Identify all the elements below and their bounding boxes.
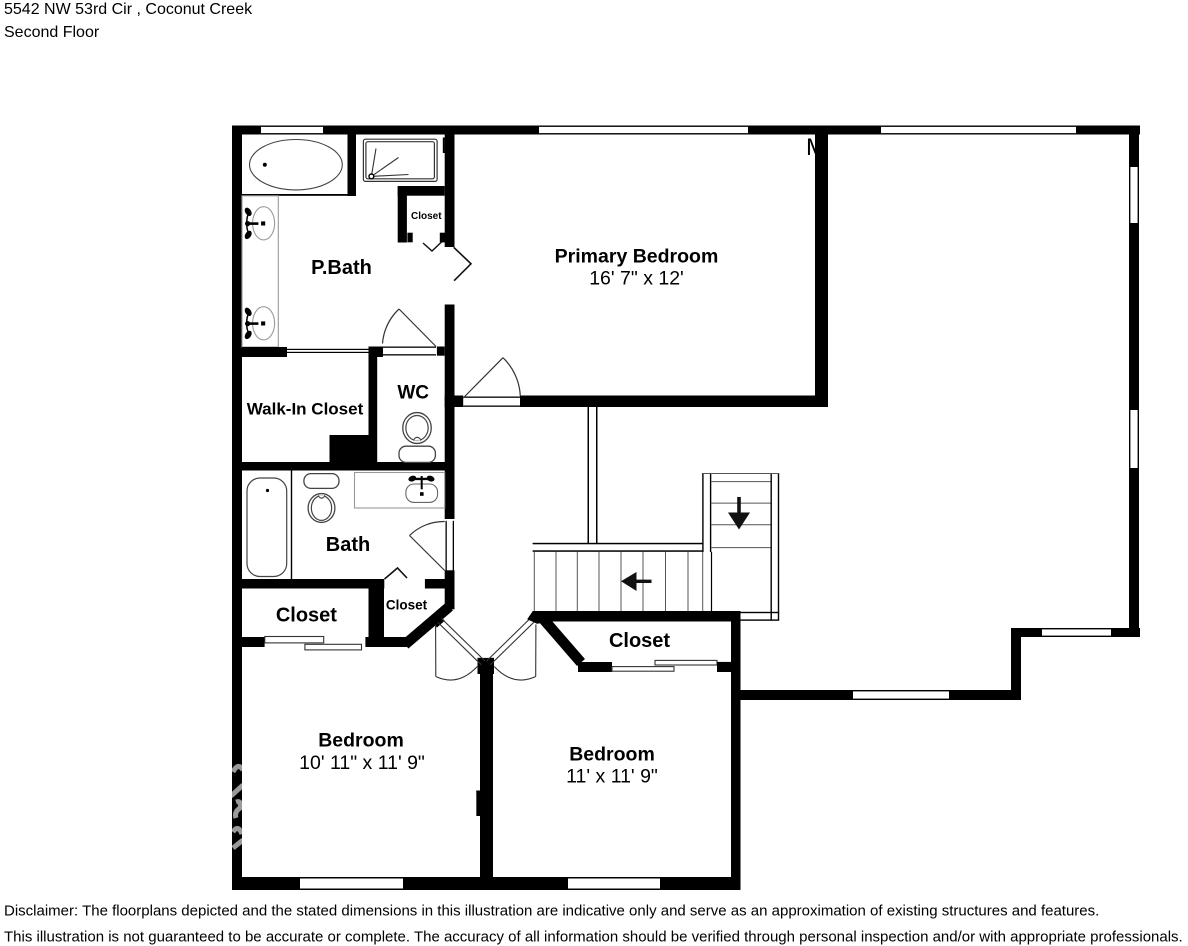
svg-text:Bath: Bath xyxy=(326,534,370,556)
svg-text:Primary Bedroom: Primary Bedroom xyxy=(555,246,719,268)
svg-text:10' 11" x 11' 9": 10' 11" x 11' 9" xyxy=(299,752,425,774)
svg-text:P.Bath: P.Bath xyxy=(311,257,372,279)
svg-text:Closet: Closet xyxy=(386,598,428,613)
svg-text:Closet: Closet xyxy=(609,630,670,652)
svg-text:Second Floor: Second Floor xyxy=(4,24,100,41)
svg-text:Closet: Closet xyxy=(276,604,337,626)
svg-text:M: M xyxy=(806,134,826,161)
svg-text:Bedroom: Bedroom xyxy=(318,730,404,752)
svg-text:r: r xyxy=(473,774,489,827)
svg-text:Walk-In Closet: Walk-In Closet xyxy=(247,400,364,419)
svg-text:Disclaimer: The floorplans dep: Disclaimer: The floorplans depicted and … xyxy=(4,903,1099,920)
svg-text:5542 NW 53rd Cir , Coconut Cre: 5542 NW 53rd Cir , Coconut Creek xyxy=(4,1,253,18)
svg-text:11' x 11' 9": 11' x 11' 9" xyxy=(566,766,658,788)
svg-text:16' 7" x 12': 16' 7" x 12' xyxy=(589,268,684,290)
svg-text:This illustration is not guara: This illustration is not guaranteed to b… xyxy=(4,929,1183,946)
svg-text:Closet: Closet xyxy=(411,211,442,222)
svg-text:L: L xyxy=(441,133,453,158)
svg-text:Bedroom: Bedroom xyxy=(569,744,655,766)
svg-text:WC: WC xyxy=(397,383,429,404)
